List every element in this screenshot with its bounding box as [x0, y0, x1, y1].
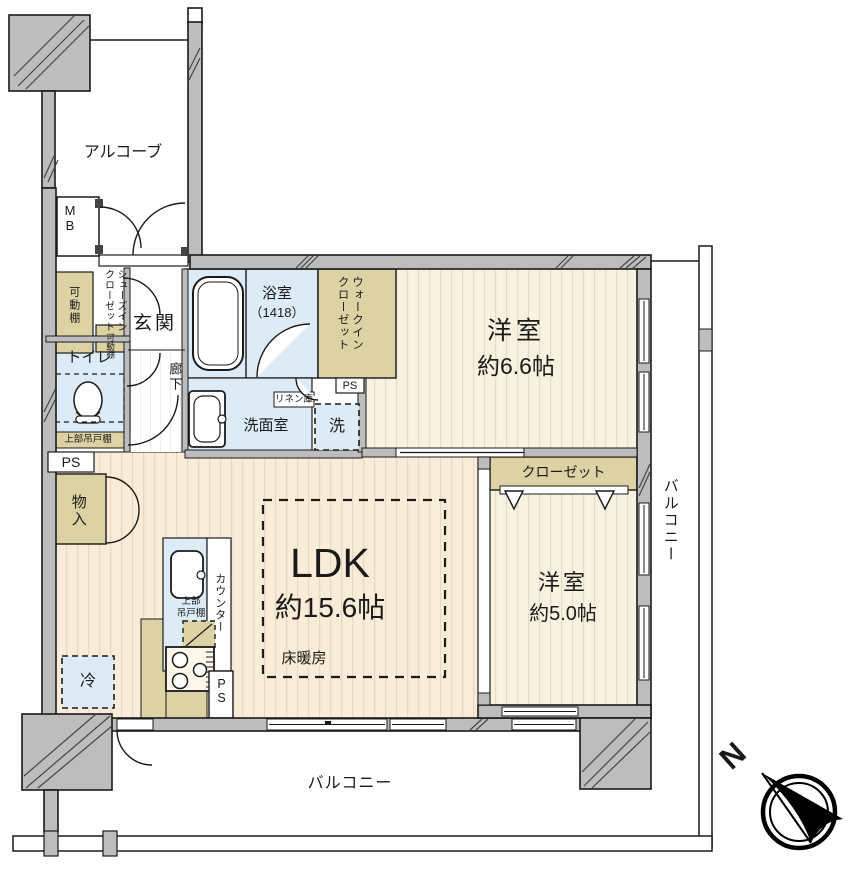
washroom-label: 洗面室: [224, 417, 308, 436]
shoes-closet-label: シューズインクローゼット: [98, 267, 126, 333]
ldk-size-label: 約15.6帖: [240, 590, 420, 625]
washer-label: 洗: [315, 404, 359, 450]
kitchen-cabinet-left: [141, 619, 166, 718]
balcony-right-wall-post: [699, 329, 712, 351]
meter-box-label: MB: [61, 204, 79, 233]
balcony-bottom-label: バルコニー: [285, 774, 415, 794]
washbasin-bowl: [194, 396, 220, 442]
hall-bath-wall: [182, 269, 188, 452]
entrance-door-sill: [99, 255, 188, 266]
alcove-label: アルコーブ: [58, 143, 188, 163]
toilet-tank: [76, 416, 100, 423]
balcony-railing: [13, 836, 712, 851]
railing-post: [44, 831, 58, 856]
door-hinge: [95, 245, 103, 254]
stove-burner: [194, 664, 207, 677]
railing-post: [103, 831, 117, 856]
door-hinge: [181, 247, 188, 256]
washroom-ldk-wall: [185, 450, 362, 458]
wall-segment: [524, 448, 637, 457]
bedroom2-floor: [490, 488, 637, 705]
stove-burner: [173, 674, 188, 689]
kitchen-pipe-space-label: PS: [214, 677, 229, 705]
counter-label: カウンター: [212, 549, 226, 657]
bath-label: 浴室: [231, 285, 323, 304]
storage-monoire-label: 物入: [68, 487, 87, 535]
bedroom1-label: 洋室: [436, 316, 596, 347]
balcony-door-opening: [117, 719, 153, 730]
top-wall: [190, 255, 651, 269]
toilet-bowl: [74, 382, 102, 418]
bedroom2-size-label: 約5.0帖: [483, 602, 643, 627]
floor-heating-label: 床暖房: [268, 650, 340, 669]
walk-in-closet-label: ウォークインクローゼット: [328, 274, 364, 352]
wic-pipe-space-label: PS: [336, 380, 364, 394]
pipe-space-left-label: PS: [48, 454, 94, 472]
kitchen-faucet: [197, 571, 205, 579]
wall-segment: [362, 448, 396, 457]
balcony-post: [44, 790, 58, 832]
bedroom1-size-label: 約6.6帖: [436, 352, 596, 381]
floor-plan-page: アルコーブ MB 可動棚 シューズインクローゼット 可動棚 玄関 廊下 トイレ …: [0, 0, 851, 869]
bath-size-label: （1418）: [231, 305, 323, 321]
compass: [762, 773, 843, 848]
toilet-top-wall: [46, 336, 130, 342]
hallway-label: 廊下: [166, 355, 182, 399]
balcony-door: [117, 730, 152, 765]
bedroom2-closet-label: クローゼット: [492, 464, 635, 482]
refrigerator-label: 冷: [62, 656, 114, 708]
stove-burner: [173, 653, 188, 668]
wall-segment: [478, 457, 490, 469]
ldk-label: LDK: [240, 538, 420, 589]
movable-shelf-label: 可動棚: [66, 281, 80, 329]
toilet-upper-cabinet-label: 上部吊戸棚: [46, 434, 130, 446]
bedroom2-label: 洋室: [483, 569, 643, 597]
kitchen-upper-cabinet-label: 上部 吊戸棚: [168, 596, 214, 620]
toilet-label: トイレ: [58, 349, 120, 368]
wall-segment: [478, 693, 490, 705]
pillar-bottom-right: [580, 718, 651, 789]
linen-label: リネン庫: [274, 394, 314, 406]
balcony-right-label: バルコニー: [660, 461, 679, 579]
alcove-left-wall: [42, 91, 55, 188]
genkan-label: 玄関: [124, 312, 186, 336]
